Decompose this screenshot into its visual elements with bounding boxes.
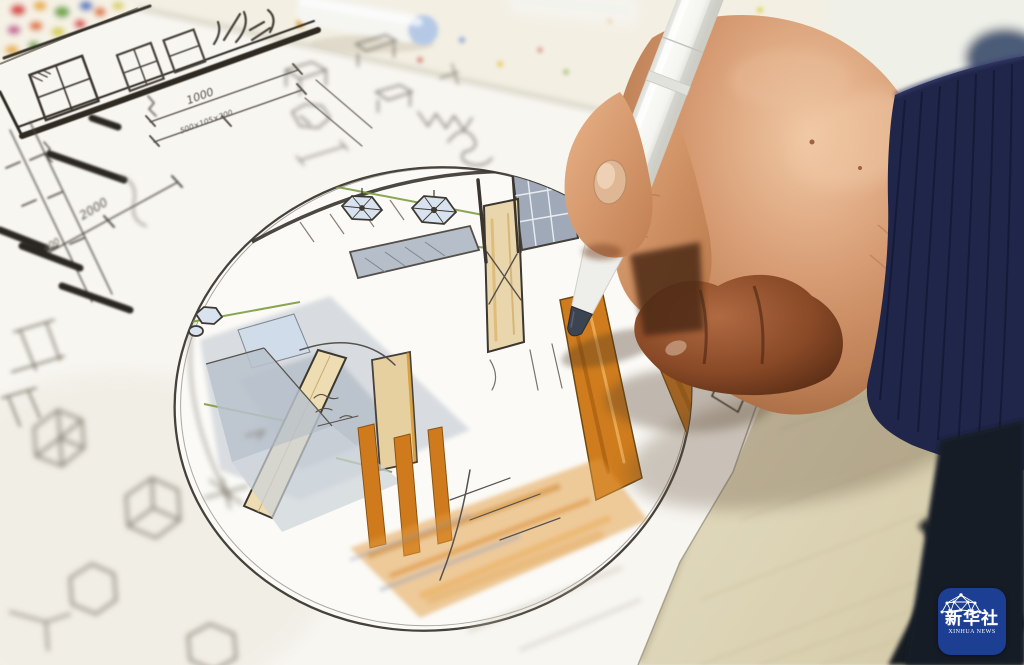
photo-hand-drawing-design-sketch: 1000 500×105×200 2000 400 <box>0 0 1024 665</box>
skin-mole <box>858 166 862 170</box>
skin-mole <box>810 140 815 145</box>
network-globe-icon <box>938 591 984 615</box>
photo-scene: 1000 500×105×200 2000 400 <box>0 0 1024 665</box>
xinhua-watermark: 新华社 XINHUA NEWS <box>938 588 1006 655</box>
watermark-subtitle: XINHUA NEWS <box>948 629 995 635</box>
